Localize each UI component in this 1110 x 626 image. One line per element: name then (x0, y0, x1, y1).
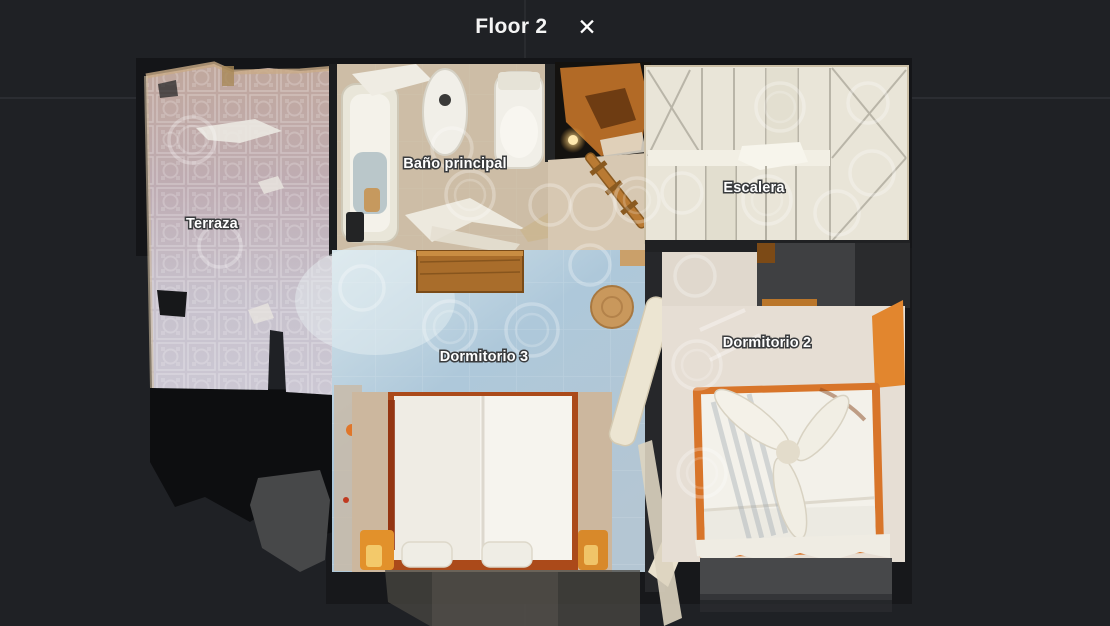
bed-dormitorio-3 (352, 392, 612, 572)
bidet (423, 69, 467, 155)
bath-mat (346, 212, 364, 242)
floorplan-canvas[interactable]: Terraza Baño principal Escalera Dormitor… (0, 0, 1110, 626)
room-terraza[interactable] (146, 64, 338, 395)
label-dormitorio-2[interactable]: Dormitorio 2 (723, 335, 812, 351)
room-escalera[interactable] (645, 66, 910, 254)
label-bano-principal[interactable]: Baño principal (403, 156, 507, 172)
floorplan-viewer: Floor 2 ✕ (0, 0, 1110, 626)
label-terraza[interactable]: Terraza (186, 216, 239, 232)
toilet (495, 72, 543, 168)
floor-header: Floor 2 ✕ (0, 0, 1094, 54)
round-stool (591, 286, 633, 328)
label-escalera[interactable]: Escalera (723, 180, 785, 196)
room-dormitorio-2[interactable] (662, 243, 910, 612)
close-icon[interactable]: ✕ (571, 12, 602, 43)
label-dormitorio-3[interactable]: Dormitorio 3 (440, 349, 529, 365)
room-dormitorio-3[interactable] (295, 245, 645, 572)
dresser (417, 251, 523, 292)
floor-title: Floor 2 (475, 15, 547, 39)
